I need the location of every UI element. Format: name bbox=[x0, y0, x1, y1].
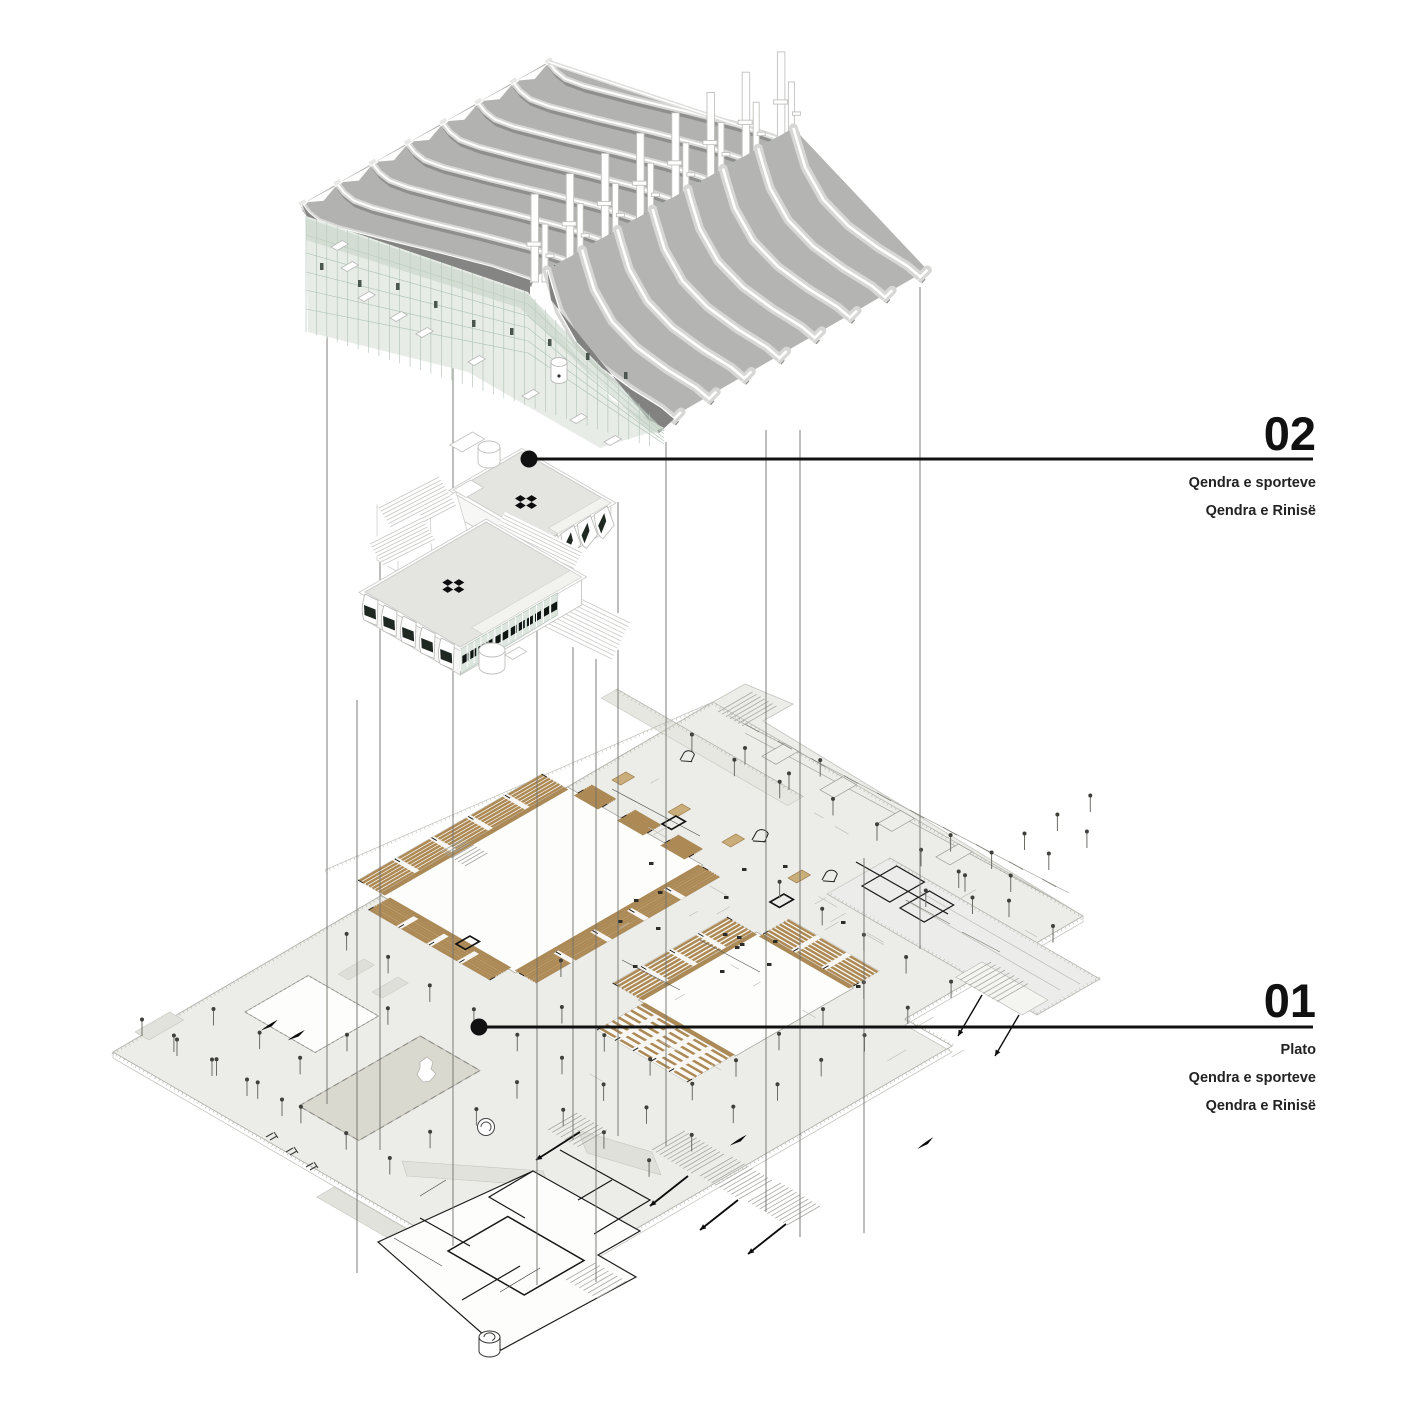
svg-text:Qendra e Rinisë: Qendra e Rinisë bbox=[1206, 1098, 1316, 1114]
svg-text:Qendra e sporteve: Qendra e sporteve bbox=[1189, 1070, 1316, 1086]
svg-text:Qendra e sporteve: Qendra e sporteve bbox=[1189, 475, 1316, 491]
svg-text:Plato: Plato bbox=[1281, 1042, 1317, 1058]
svg-text:Qendra e Rinisë: Qendra e Rinisë bbox=[1206, 503, 1316, 519]
svg-text:01: 01 bbox=[1264, 974, 1316, 1027]
svg-text:02: 02 bbox=[1264, 407, 1316, 460]
